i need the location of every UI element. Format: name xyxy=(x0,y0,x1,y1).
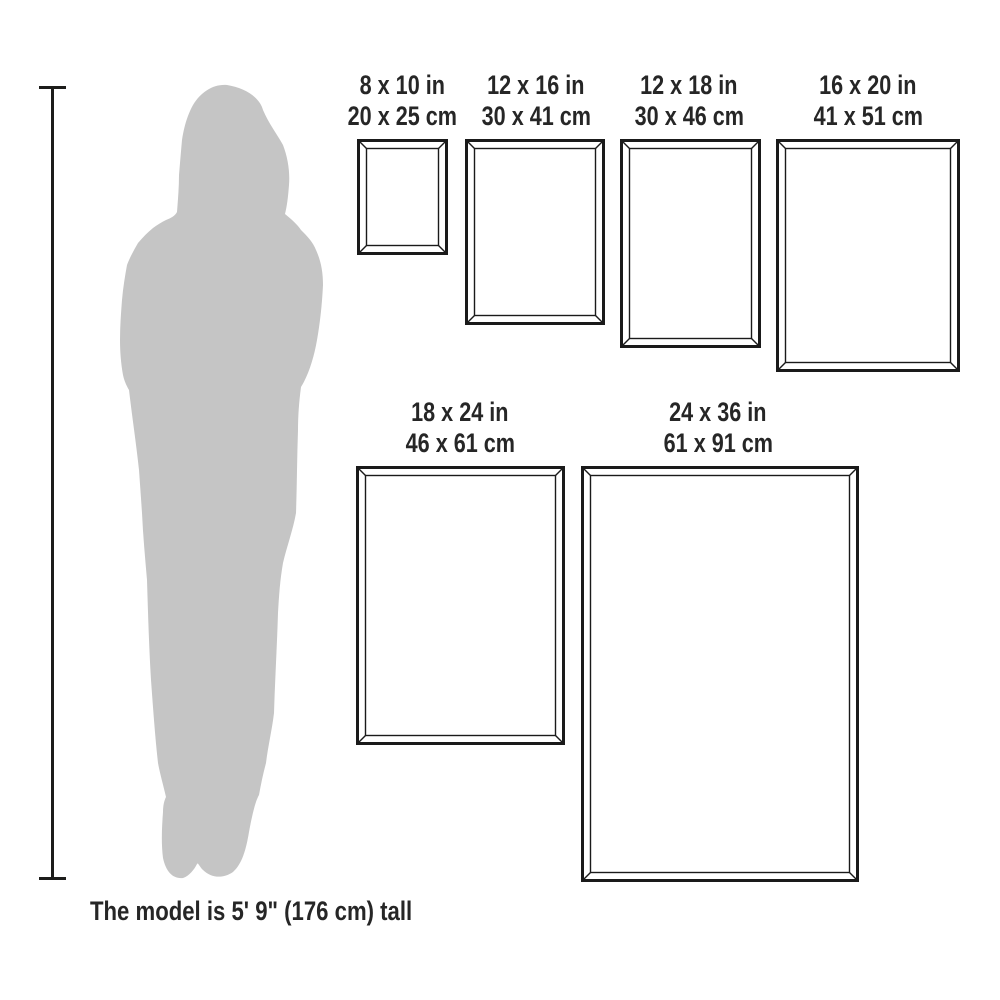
height-scale-line xyxy=(51,87,54,878)
frame-size-inches: 16 x 20 in xyxy=(756,70,980,101)
frame-24x36 xyxy=(581,466,859,882)
caption-text: The model is 5' 9" (176 cm) tall xyxy=(90,896,412,927)
frame-size-cm: 46 x 61 cm xyxy=(348,428,572,459)
frame-12x18 xyxy=(620,139,761,348)
size-comparison-diagram: 8 x 10 in20 x 25 cm12 x 16 in30 x 41 cm1… xyxy=(0,0,1000,1000)
caption: The model is 5' 9" (176 cm) tall xyxy=(90,896,483,927)
frame-label-group-16x20: 16 x 20 in41 x 51 cm xyxy=(756,70,980,132)
silhouette-path xyxy=(120,85,323,878)
scale-cap-bottom xyxy=(39,877,66,880)
frame-size-inches: 24 x 36 in xyxy=(606,397,830,428)
frame-size-inches: 18 x 24 in xyxy=(348,397,572,428)
frame-18x24 xyxy=(356,466,565,745)
frame-16x20 xyxy=(776,139,960,372)
frame-label-group-18x24: 18 x 24 in46 x 61 cm xyxy=(348,397,572,459)
frame-size-cm: 61 x 91 cm xyxy=(606,428,830,459)
frame-8x10 xyxy=(357,139,448,255)
model-silhouette xyxy=(110,84,325,882)
frame-label-group-24x36: 24 x 36 in61 x 91 cm xyxy=(606,397,830,459)
frame-size-cm: 41 x 51 cm xyxy=(756,101,980,132)
frame-12x16 xyxy=(465,139,605,325)
